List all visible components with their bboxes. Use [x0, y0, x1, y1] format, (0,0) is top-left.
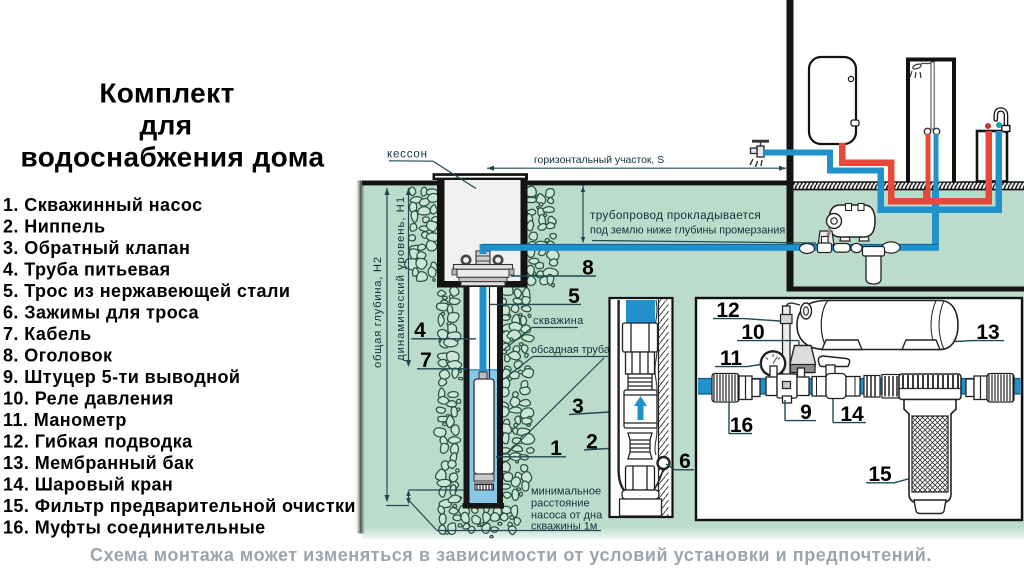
- svg-text:для: для: [139, 110, 192, 141]
- svg-text:12. Гибкая подводка: 12. Гибкая подводка: [3, 432, 193, 452]
- svg-text:кессон: кессон: [387, 149, 428, 161]
- svg-text:15. Фильтр предварительной очи: 15. Фильтр предварительной очистки: [3, 496, 356, 516]
- svg-text:под землю ниже глубины промерз: под землю ниже глубины промерзания: [590, 225, 785, 237]
- svg-text:общая глубина, Н2: общая глубина, Н2: [372, 256, 384, 368]
- svg-text:трубопровод прокладывается: трубопровод прокладывается: [590, 208, 761, 222]
- svg-text:14. Шаровый кран: 14. Шаровый кран: [3, 475, 173, 495]
- svg-text:16. Муфты соединительные: 16. Муфты соединительные: [3, 518, 266, 538]
- svg-text:динамический уровень, Н1: динамический уровень, Н1: [395, 196, 407, 361]
- svg-text:8. Оголовок: 8. Оголовок: [3, 346, 113, 366]
- svg-text:3. Обратный клапан: 3. Обратный клапан: [3, 238, 190, 258]
- svg-text:11. Манометр: 11. Манометр: [3, 410, 127, 430]
- svg-text:4. Труба питьевая: 4. Труба питьевая: [3, 260, 171, 280]
- svg-text:Схема монтажа может изменяться: Схема монтажа может изменяться в зависим…: [90, 545, 932, 565]
- svg-text:13. Мембранный бак: 13. Мембранный бак: [3, 453, 194, 473]
- svg-text:7. Кабель: 7. Кабель: [3, 324, 92, 344]
- svg-text:скважины 1м: скважины 1м: [531, 521, 597, 533]
- svg-text:9. Штуцер 5-ти выводной: 9. Штуцер 5-ти выводной: [3, 367, 240, 387]
- svg-text:скважина: скважина: [533, 315, 584, 327]
- svg-text:2. Ниппель: 2. Ниппель: [3, 217, 106, 237]
- svg-text:10. Реле давления: 10. Реле давления: [3, 389, 174, 409]
- svg-text:минимальное: минимальное: [531, 486, 601, 498]
- svg-text:расстояние: расстояние: [531, 498, 590, 510]
- svg-text:5. Трос из нержавеющей стали: 5. Трос из нержавеющей стали: [3, 281, 290, 301]
- svg-text:горизонтальный участок, S: горизонтальный участок, S: [534, 155, 664, 166]
- svg-text:6. Зажимы для троса: 6. Зажимы для троса: [3, 303, 200, 323]
- svg-text:водоснабжения дома: водоснабжения дома: [21, 142, 325, 173]
- svg-text:1. Скважинный насос: 1. Скважинный насос: [3, 195, 203, 215]
- svg-text:Комплект: Комплект: [99, 78, 234, 109]
- svg-text:обсадная труба: обсадная труба: [531, 344, 610, 356]
